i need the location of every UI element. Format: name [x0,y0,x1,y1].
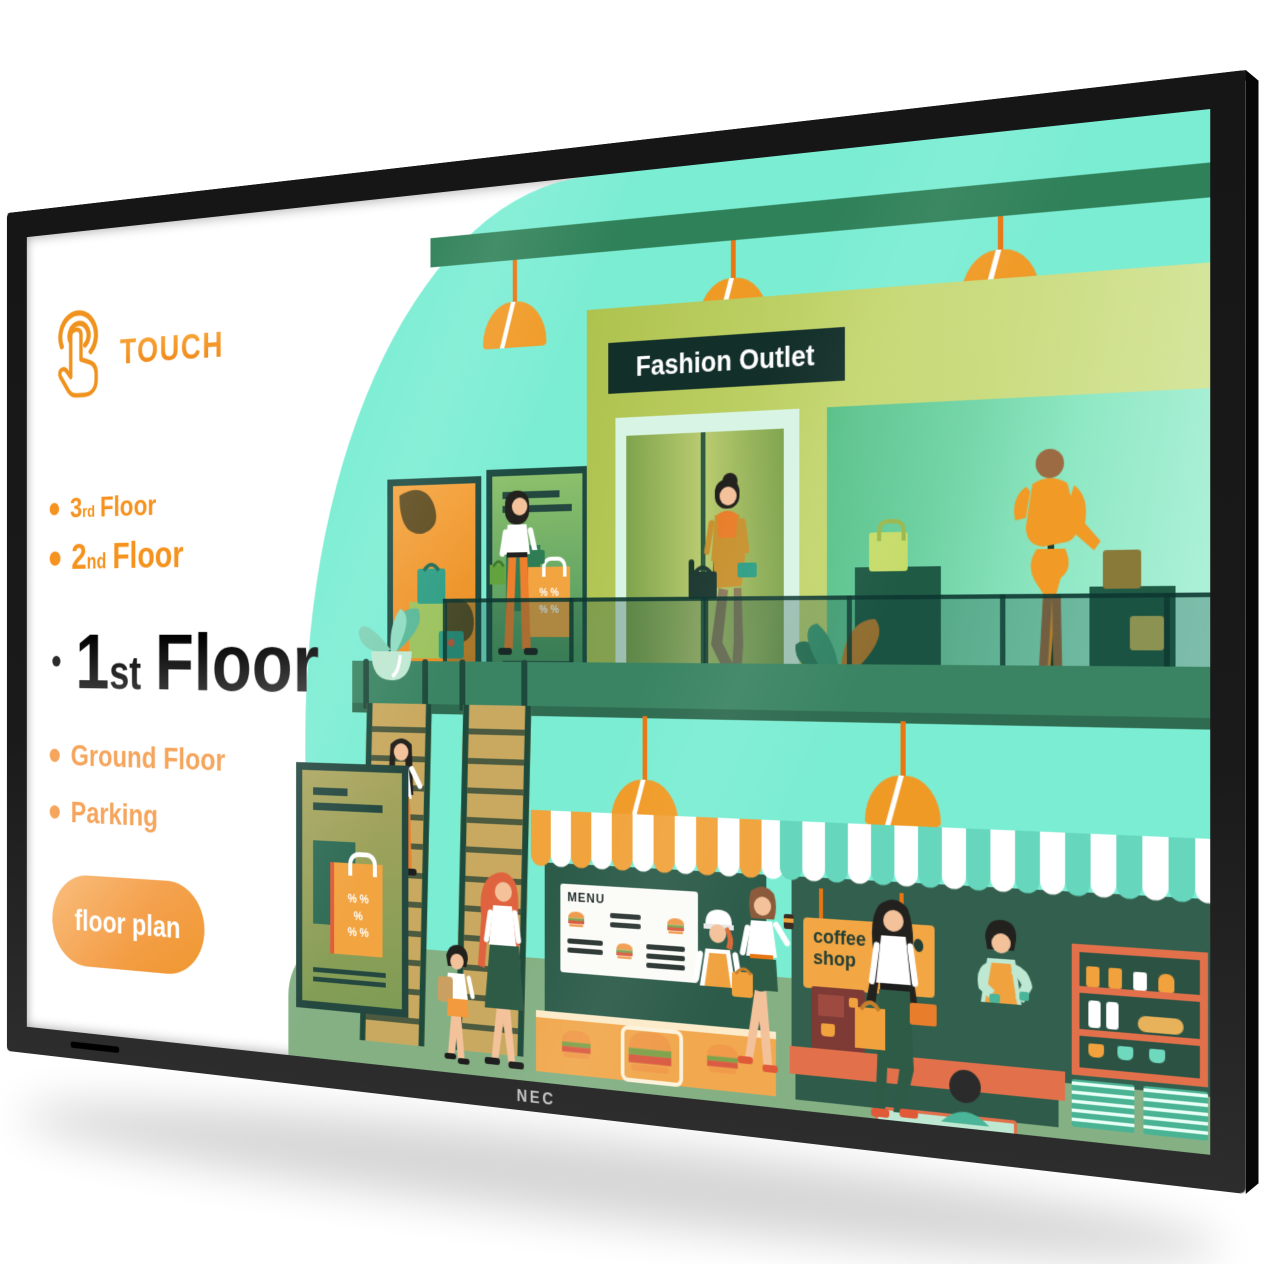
store-window [827,388,1210,728]
customer-at-counter [928,1065,1002,1128]
store-door [615,409,799,720]
stand-counter [536,1010,776,1096]
floor-plan-button[interactable]: floor plan [52,873,204,977]
pendant-lamp [483,257,546,350]
stair-plant [352,585,429,688]
floor-label: 2ndFloor [71,535,183,578]
touch-branding: TOUCH [51,293,224,407]
pendant-lamp-lower [611,715,678,828]
price-board [1072,1079,1135,1133]
burger-vendor [681,905,757,1036]
pendant-lamp [961,213,1040,304]
menu-item-2nd-floor[interactable]: 2ndFloor [50,535,184,578]
fashion-outlet-store: Fashion Outlet [587,262,1211,727]
burger-stand: MENU [541,812,770,1088]
bullet-icon [50,749,60,763]
menu-item-1st-floor[interactable]: 1stFloor [52,615,319,712]
product-photo-stage: NEC [0,0,1264,1264]
burger-awning [531,810,782,882]
menu-item-parking[interactable]: Parking [50,794,158,834]
touch-hand-icon [51,304,110,408]
touch-label: TOUCH [120,325,224,372]
floor-label: 1stFloor [75,615,319,712]
person-shopper-door [681,469,766,685]
pendant-lamp-lower [865,720,941,827]
stair-post [521,660,527,712]
touch-screen: % % % % Fashion Outlet [27,109,1211,1155]
menu-title: MENU [567,889,605,907]
bullet-icon [50,502,59,515]
coffee-shop: coffee shop [790,823,1211,1146]
shop-counter [790,1046,1066,1101]
price-board [1143,1086,1208,1141]
glass-balustrade [443,592,1210,676]
coffee-sign-stick [819,888,823,920]
pendant-lamp [698,237,768,329]
mannequin [981,443,1123,728]
monitor-side-edge [1246,70,1259,1194]
coffee-sign-stick [900,893,904,926]
barista [953,914,1049,1072]
person-bags-shopper [843,894,945,1131]
menu-board: MENU [560,883,698,983]
bullet-icon [50,805,60,819]
floor-label: 3rdFloor [70,488,156,524]
coffee-shop-sign: coffee shop [803,917,934,998]
coffee-beans-icon [897,936,924,977]
nec-touch-display: NEC [7,70,1246,1194]
bullet-icon [50,551,61,565]
discount-bag: % % % % % [330,862,382,958]
menu-item-ground-floor[interactable]: Ground Floor [50,738,226,779]
floor-label: Parking [71,795,158,834]
bullet-icon [52,656,60,667]
fashion-outlet-sign: Fashion Outlet [608,327,845,394]
person-boy [426,940,484,1073]
menu-item-3rd-floor[interactable]: 3rdFloor [50,488,157,525]
floor-label: Ground Floor [71,739,226,780]
person-coffee-walker [721,881,808,1099]
stair-post [459,659,465,710]
sale-billboard: % % % % % [296,762,408,1018]
shelf-unit [1072,944,1208,1088]
